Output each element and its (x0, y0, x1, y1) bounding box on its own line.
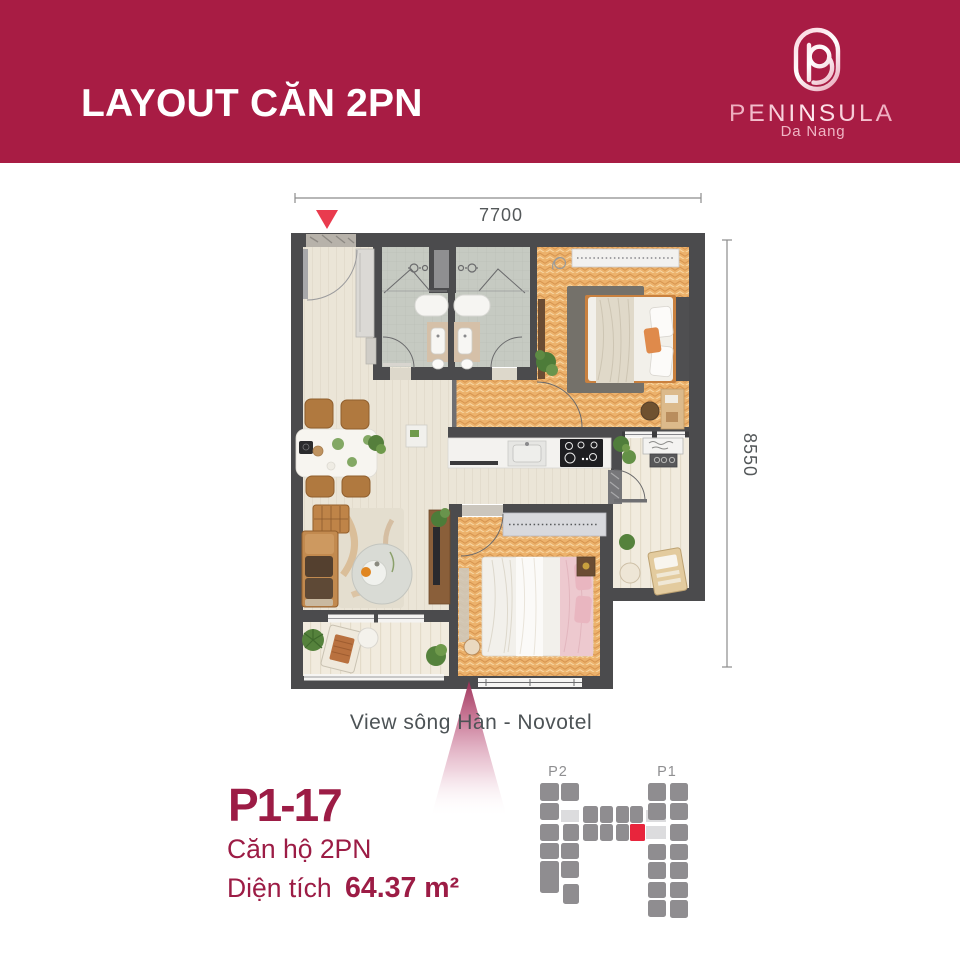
svg-text:LAYOUT CĂN 2PN: LAYOUT CĂN 2PN (81, 81, 423, 125)
svg-text:7700: 7700 (479, 205, 523, 225)
svg-text:P2: P2 (548, 764, 568, 780)
svg-text:8550: 8550 (740, 433, 760, 477)
svg-text:View sông Hàn - Novotel: View sông Hàn - Novotel (350, 711, 592, 734)
svg-text:P1: P1 (657, 764, 677, 780)
svg-text:Da Nang: Da Nang (781, 123, 846, 140)
svg-text:Căn hộ 2PN: Căn hộ 2PN (227, 834, 371, 864)
svg-text:Diện tích: Diện tích (227, 873, 332, 903)
svg-text:64.37 m²: 64.37 m² (345, 872, 459, 904)
svg-text:P1-17: P1-17 (228, 779, 341, 831)
